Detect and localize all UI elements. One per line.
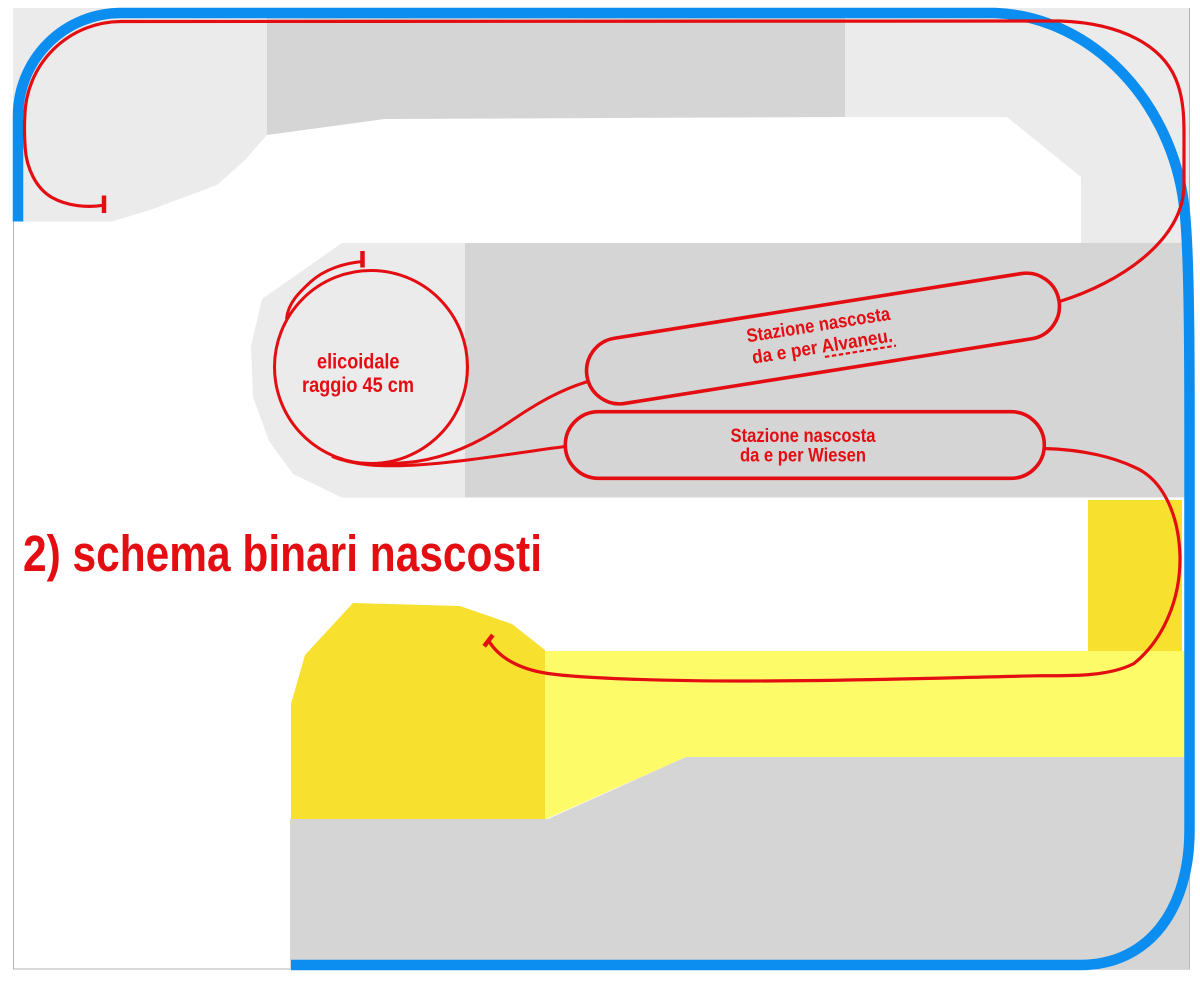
svg-text:raggio 45 cm: raggio 45 cm [302, 374, 414, 397]
svg-text:elicoidale: elicoidale [317, 351, 400, 374]
svg-text:Stazione nascosta: Stazione nascosta [731, 426, 876, 447]
svg-text:da e per Wiesen: da e per Wiesen [740, 446, 866, 467]
svg-text:2) schema binari nascosti: 2) schema binari nascosti [23, 525, 542, 582]
